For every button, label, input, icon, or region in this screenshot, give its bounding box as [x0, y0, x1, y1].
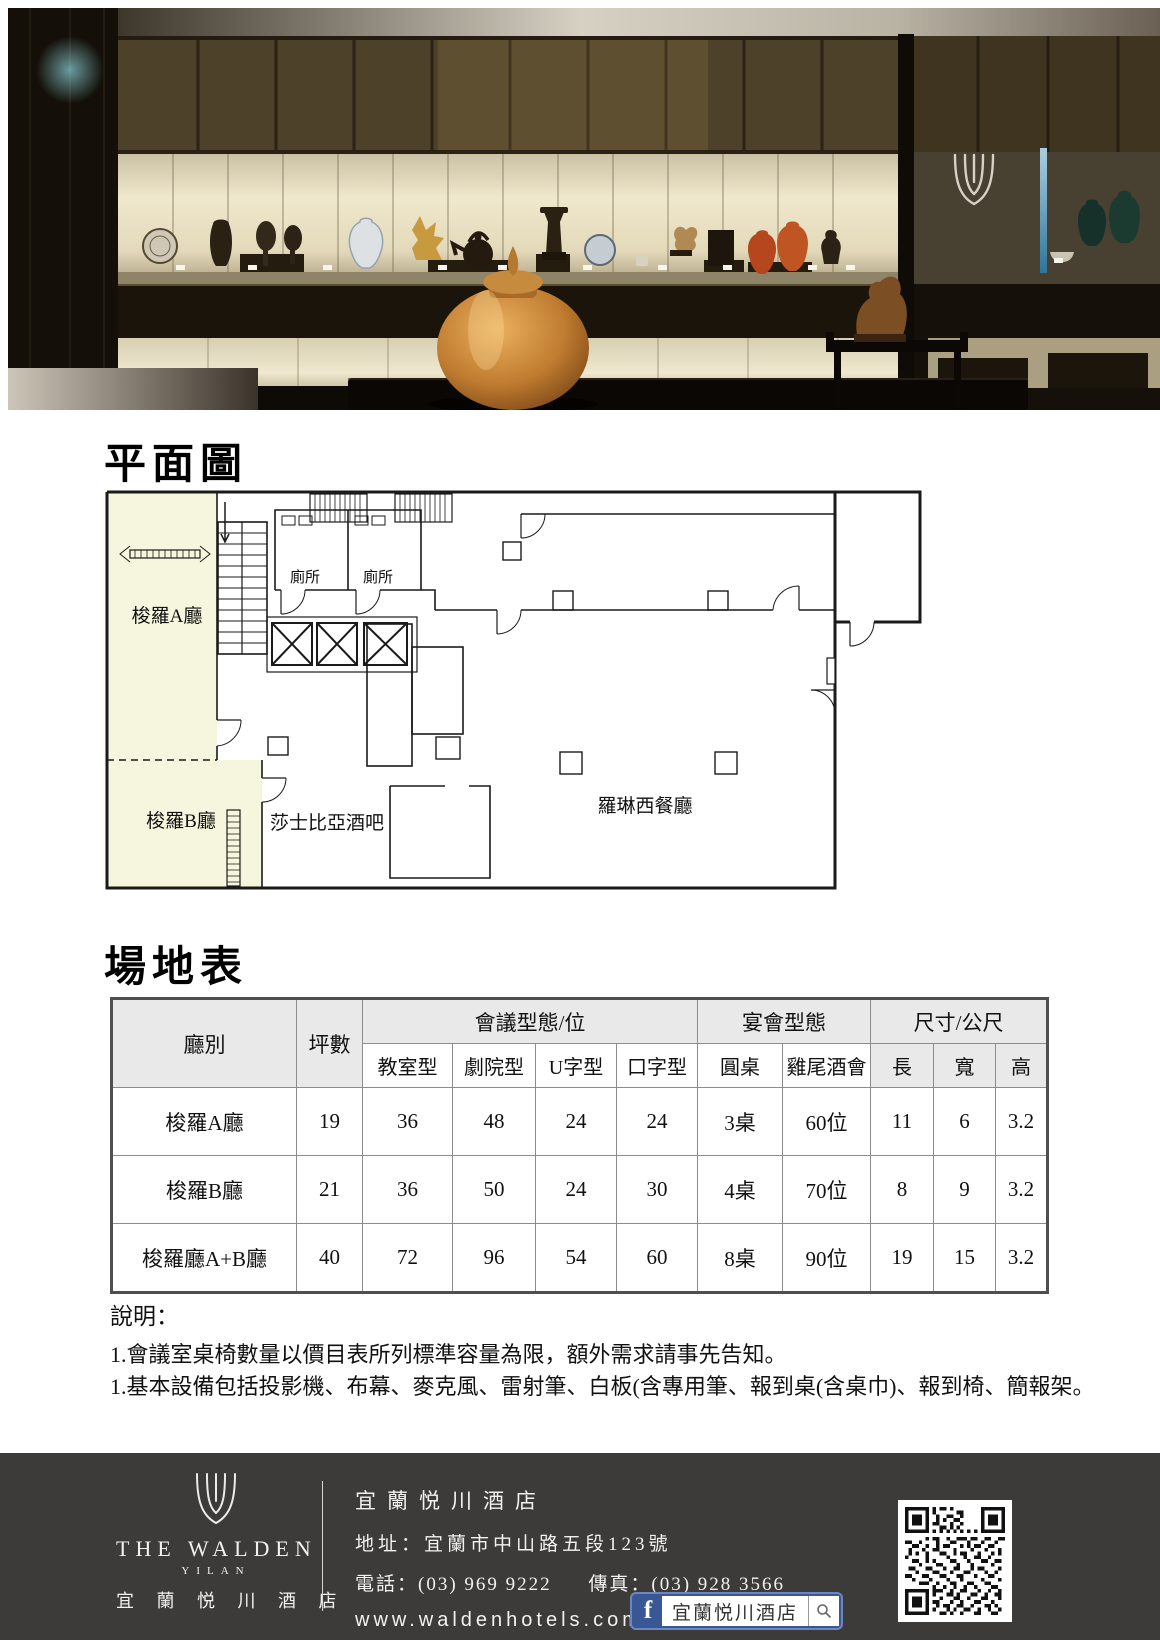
notes-section: 說明： 1.會議室桌椅數量以價目表所列標準容量為限，額外需求請事先告知。 1.基…	[110, 1297, 1110, 1403]
footer-phone: 電話：(03) 969 9222	[355, 1574, 552, 1595]
note-line: 1.基本設備包括投影機、布幕、麥克風、雷射筆、白板(含專用筆、報到桌(含桌巾)、…	[110, 1371, 1110, 1403]
lobby-photo	[8, 8, 1160, 410]
venue-table: 廳別 坪數 會議型態/位 宴會型態 尺寸/公尺 教室型 劇院型 U字型 口字型 …	[110, 997, 1049, 1294]
facebook-badge: f 宜蘭悦川酒店	[630, 1592, 843, 1630]
room-label-bar: 莎士比亞酒吧	[270, 812, 384, 834]
table-row: 梭羅廳A+B廳 40 72 96 54 60 8桌 90位 19 15 3.2	[112, 1224, 1048, 1293]
floor-plan-title: 平面圖	[104, 430, 248, 491]
plate-artifact	[143, 229, 177, 263]
header-banquet-group: 宴會型態	[698, 999, 871, 1044]
room-label-hall-a: 梭羅A廳	[132, 605, 203, 627]
walden-logo-icon	[190, 1471, 242, 1529]
wood-partition	[898, 34, 914, 410]
header-area: 坪數	[297, 999, 363, 1088]
header-theater: 劇院型	[453, 1044, 536, 1088]
cell-hall: 梭羅廳A+B廳	[112, 1224, 297, 1293]
facebook-icon: f	[634, 1596, 662, 1626]
facebook-page-label: 宜蘭悦川酒店	[662, 1596, 808, 1626]
brochure-page: 平面圖	[0, 0, 1160, 1640]
room-label-toilet-left: 廁所	[290, 568, 320, 586]
table-row: 梭羅A廳 19 36 48 24 24 3桌 60位 11 6 3.2	[112, 1088, 1048, 1156]
header-height: 高	[996, 1044, 1048, 1088]
note-line: 1.會議室桌椅數量以價目表所列標準容量為限，額外需求請事先告知。	[110, 1339, 1110, 1371]
table-row: 梭羅B廳 21 36 50 24 30 4桌 70位 8 9 3.2	[112, 1156, 1048, 1224]
floor	[8, 368, 258, 410]
upper-cabinet	[118, 36, 898, 152]
ceiling	[108, 8, 1160, 38]
header-round-table: 圓桌	[698, 1044, 783, 1088]
floor-plan-drawing: 梭羅A廳 梭羅B廳 廁所 廁所 莎士比亞酒吧 羅琳西餐廳	[105, 490, 1055, 892]
led-light-strip	[1040, 148, 1047, 273]
qr-code	[898, 1500, 1012, 1622]
footer-hotel-name: 宜蘭悦川酒店	[355, 1485, 785, 1515]
right-glass-section	[914, 36, 1160, 410]
header-classroom: 教室型	[363, 1044, 453, 1088]
header-width: 寬	[934, 1044, 996, 1088]
porcelain-vase-artifact	[349, 218, 382, 268]
header-length: 長	[871, 1044, 934, 1088]
header-hollow-square: 口字型	[617, 1044, 698, 1088]
footer-logo: THE WALDEN YILAN 宜 蘭 悦 川 酒 店	[116, 1471, 316, 1613]
footer-logo-name-en: THE WALDEN	[116, 1536, 316, 1562]
cell-hall: 梭羅A廳	[112, 1088, 297, 1156]
room-label-restaurant: 羅琳西餐廳	[597, 795, 692, 817]
search-icon	[808, 1596, 839, 1626]
footer-logo-name-zh: 宜 蘭 悦 川 酒 店	[116, 1587, 316, 1613]
room-label-toilet-right: 廁所	[363, 568, 393, 586]
header-cocktail: 雞尾酒會	[783, 1044, 871, 1088]
footer-logo-location-en: YILAN	[116, 1565, 316, 1577]
footer-divider	[322, 1481, 323, 1611]
header-hall: 廳別	[112, 999, 297, 1088]
header-u-shape: U字型	[536, 1044, 617, 1088]
venue-table-title: 場地表	[104, 933, 248, 994]
header-size-group: 尺寸/公尺	[871, 999, 1048, 1044]
footer-address: 地址：宜蘭市中山路五段123號	[355, 1529, 785, 1556]
cell-hall: 梭羅B廳	[112, 1156, 297, 1224]
room-label-hall-b: 梭羅B廳	[146, 810, 216, 832]
notes-title: 說明：	[110, 1297, 1110, 1331]
lobby-photo-art	[8, 8, 1160, 410]
vase-artifact	[210, 220, 232, 267]
left-pillar	[8, 8, 118, 410]
floor-plan: 梭羅A廳 梭羅B廳 廁所 廁所 莎士比亞酒吧 羅琳西餐廳	[105, 490, 1055, 892]
footer: THE WALDEN YILAN 宜 蘭 悦 川 酒 店 宜蘭悦川酒店 地址：宜…	[0, 1453, 1160, 1640]
header-meeting-group: 會議型態/位	[363, 999, 698, 1044]
